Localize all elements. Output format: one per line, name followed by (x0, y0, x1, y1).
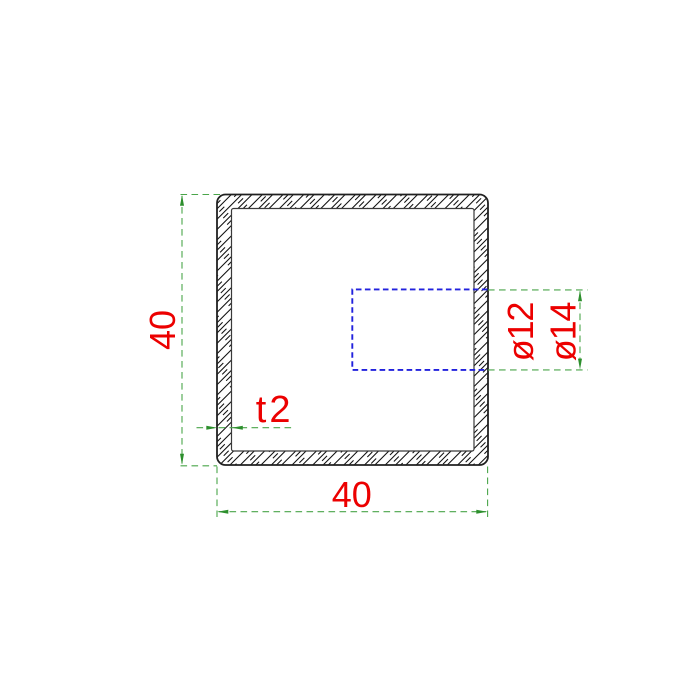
svg-text:ø14: ø14 (543, 303, 584, 362)
svg-text:ø12: ø12 (500, 303, 541, 362)
svg-text:t2: t2 (256, 389, 294, 431)
svg-text:40: 40 (332, 474, 372, 515)
svg-text:40: 40 (142, 310, 183, 350)
